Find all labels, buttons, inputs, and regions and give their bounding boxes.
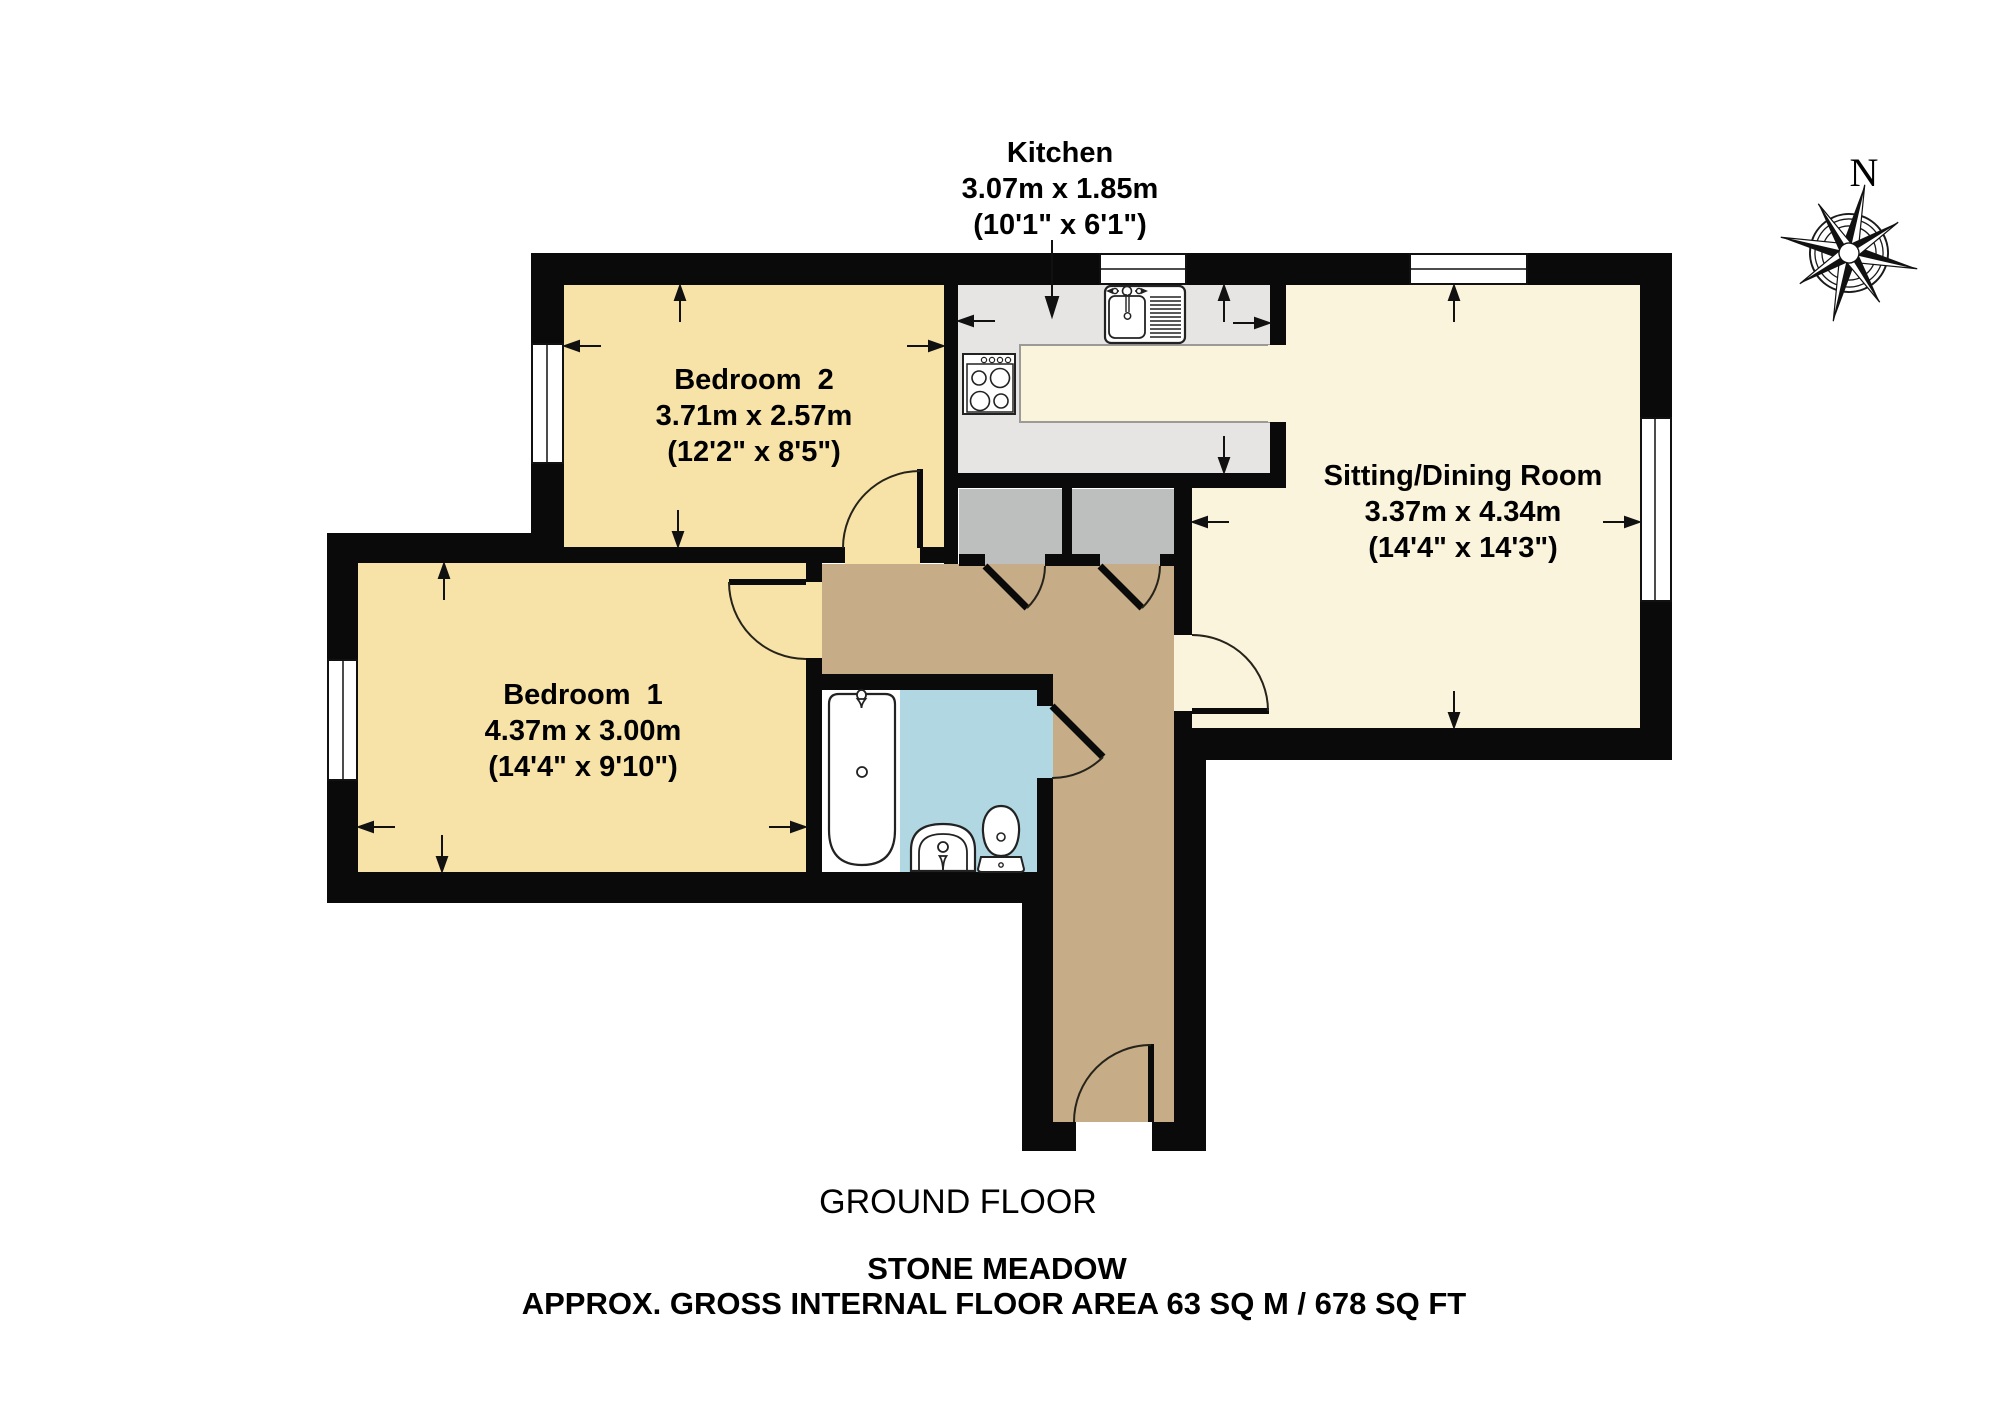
svg-text:GROUND FLOOR: GROUND FLOOR — [819, 1183, 1097, 1221]
svg-text:Bedroom 1: Bedroom 1 — [503, 679, 663, 711]
svg-text:3.37m x 4.34m: 3.37m x 4.34m — [1365, 496, 1562, 528]
svg-text:N: N — [1850, 150, 1879, 195]
svg-text:Bedroom 2: Bedroom 2 — [674, 364, 834, 396]
svg-text:(10'1" x 6'1"): (10'1" x 6'1") — [973, 209, 1147, 241]
svg-text:(14'4" x 9'10"): (14'4" x 9'10") — [488, 751, 678, 783]
svg-text:APPROX. GROSS INTERNAL FLOOR A: APPROX. GROSS INTERNAL FLOOR AREA 63 SQ … — [522, 1286, 1467, 1321]
svg-text:(12'2" x 8'5"): (12'2" x 8'5") — [667, 436, 841, 468]
svg-text:Kitchen: Kitchen — [1007, 137, 1113, 169]
svg-text:3.07m x 1.85m: 3.07m x 1.85m — [962, 173, 1159, 205]
svg-text:Sitting/Dining Room: Sitting/Dining Room — [1324, 460, 1603, 492]
svg-text:4.37m x 3.00m: 4.37m x 3.00m — [485, 715, 682, 747]
svg-text:STONE MEADOW: STONE MEADOW — [867, 1251, 1127, 1286]
svg-text:(14'4" x 14'3"): (14'4" x 14'3") — [1368, 532, 1558, 564]
svg-text:3.71m x 2.57m: 3.71m x 2.57m — [656, 400, 853, 432]
